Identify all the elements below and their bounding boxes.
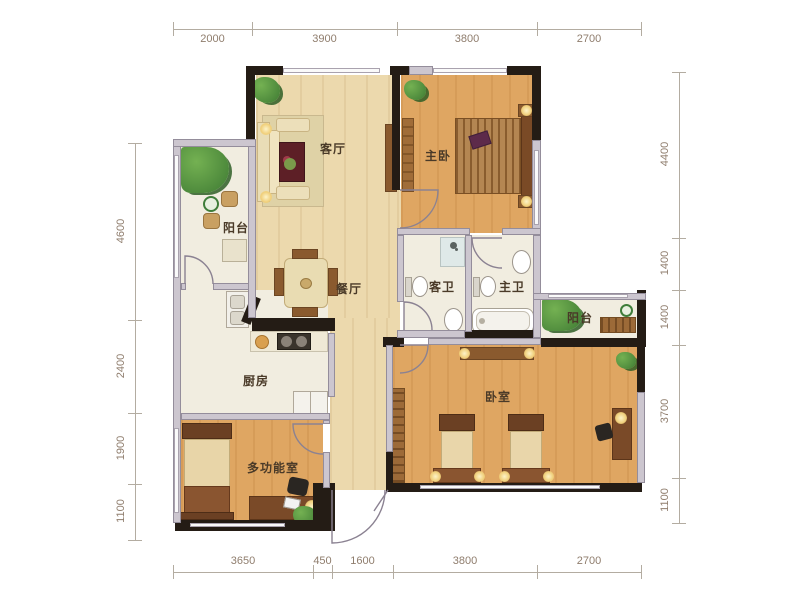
dim-tick-bottom bbox=[641, 565, 642, 579]
dim-line-top bbox=[173, 29, 641, 30]
room-label-kitchen: 厨房 bbox=[211, 372, 301, 389]
room-label-master-bathroom: 主卫 bbox=[467, 278, 557, 295]
room-label-dining-room: 餐厅 bbox=[304, 280, 394, 297]
dim-value-bottom-4: 2700 bbox=[567, 555, 611, 567]
dim-value-left-0: 4600 bbox=[115, 209, 127, 253]
dim-tick-right bbox=[672, 345, 686, 346]
door-balcony-left bbox=[185, 256, 213, 284]
dim-tick-bottom bbox=[393, 565, 394, 579]
dim-value-bottom-1: 450 bbox=[301, 555, 345, 567]
dim-tick-top bbox=[397, 22, 398, 36]
dim-tick-bottom bbox=[537, 565, 538, 579]
room-label-balcony-right: 阳台 bbox=[535, 309, 625, 326]
dim-tick-right bbox=[672, 290, 686, 291]
floor-plan: 客厅主卧阳台餐厅客卫主卫阳台厨房多功能室卧室 20003900380027003… bbox=[0, 0, 800, 600]
dim-value-right-2: 1400 bbox=[659, 295, 671, 339]
dim-value-right-0: 4400 bbox=[659, 132, 671, 176]
dim-tick-bottom bbox=[173, 565, 174, 579]
dim-tick-bottom bbox=[332, 565, 333, 579]
door-entry-main bbox=[332, 490, 385, 543]
dim-tick-left bbox=[128, 484, 142, 485]
dim-value-left-2: 1900 bbox=[115, 426, 127, 470]
dim-tick-top bbox=[641, 22, 642, 36]
dim-value-top-0: 2000 bbox=[191, 33, 235, 45]
dim-tick-left bbox=[128, 143, 142, 144]
dim-value-top-2: 3800 bbox=[445, 33, 489, 45]
dim-tick-left bbox=[128, 413, 142, 414]
door-master-bath bbox=[472, 238, 502, 268]
door-multi-room bbox=[293, 424, 323, 454]
room-label-multi-function-room: 多功能室 bbox=[228, 459, 318, 476]
dim-value-bottom-0: 3650 bbox=[221, 555, 265, 567]
dim-tick-top bbox=[537, 22, 538, 36]
room-label-master-bedroom: 主卧 bbox=[393, 147, 483, 164]
dim-value-right-3: 3700 bbox=[659, 389, 671, 433]
dim-value-bottom-3: 3800 bbox=[443, 555, 487, 567]
dim-tick-left bbox=[128, 320, 142, 321]
room-label-balcony-left: 阳台 bbox=[191, 219, 281, 236]
room-label-bedroom: 卧室 bbox=[453, 388, 543, 405]
dim-tick-top bbox=[252, 22, 253, 36]
dim-tick-right bbox=[672, 478, 686, 479]
dim-tick-top bbox=[173, 22, 174, 36]
dim-line-right bbox=[679, 72, 680, 523]
dim-tick-right bbox=[672, 523, 686, 524]
door-bedroom bbox=[400, 345, 428, 373]
dim-value-right-1: 1400 bbox=[659, 241, 671, 285]
dim-line-bottom bbox=[173, 572, 641, 573]
door-entry-leaf bbox=[374, 490, 388, 511]
dim-tick-right bbox=[672, 72, 686, 73]
dim-tick-right bbox=[672, 238, 686, 239]
dim-value-bottom-2: 1600 bbox=[341, 555, 385, 567]
dim-value-top-3: 2700 bbox=[567, 33, 611, 45]
dim-tick-bottom bbox=[313, 565, 314, 579]
dim-value-left-3: 1100 bbox=[115, 489, 127, 533]
dim-value-left-1: 2400 bbox=[115, 344, 127, 388]
dim-value-top-1: 3900 bbox=[303, 33, 347, 45]
dim-line-left bbox=[135, 143, 136, 540]
door-master-bedroom bbox=[400, 190, 438, 228]
dim-tick-left bbox=[128, 540, 142, 541]
dim-value-right-4: 1100 bbox=[659, 478, 671, 522]
door-guest-bath bbox=[404, 302, 432, 330]
room-label-living-room: 客厅 bbox=[288, 140, 378, 157]
